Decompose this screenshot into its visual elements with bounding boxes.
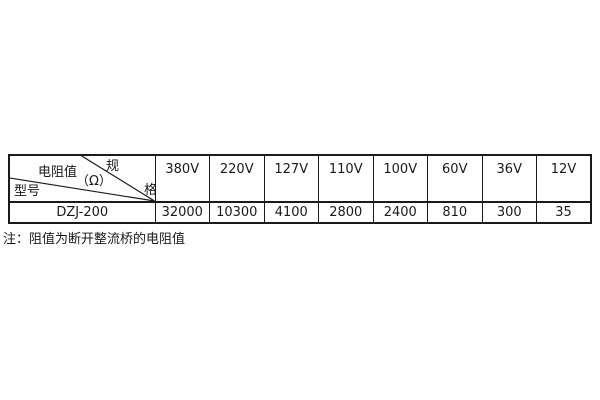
resistance-value-cell: 810	[428, 202, 483, 223]
resistance-spec-table: 规 格 电阻值 （Ω） 型号 380V 220V 127V 110V 100V …	[8, 154, 592, 224]
resistance-value-cell: 10300	[210, 202, 265, 223]
voltage-header-cell: 100V	[373, 155, 428, 202]
header-row: 规 格 电阻值 （Ω） 型号 380V 220V 127V 110V 100V …	[9, 155, 591, 202]
corner-label-spec-top: 规	[106, 160, 119, 173]
resistance-value-cell: 300	[482, 202, 537, 223]
corner-label-ohm-unit: （Ω）	[76, 175, 112, 188]
model-cell: DZJ-200	[9, 202, 155, 223]
voltage-header-cell: 60V	[428, 155, 483, 202]
resistance-value-cell: 4100	[264, 202, 319, 223]
resistance-value-cell: 2800	[319, 202, 374, 223]
corner-label-resistance: 电阻值	[38, 166, 77, 179]
resistance-value-cell: 32000	[155, 202, 210, 223]
voltage-header-cell: 380V	[155, 155, 210, 202]
data-row: DZJ-200 32000 10300 4100 2800 2400 810 3…	[9, 202, 591, 223]
page: 规 格 电阻值 （Ω） 型号 380V 220V 127V 110V 100V …	[0, 0, 600, 400]
resistance-value-cell: 35	[537, 202, 592, 223]
corner-label-spec-bottom: 格	[144, 184, 155, 197]
voltage-header-cell: 12V	[537, 155, 592, 202]
voltage-header-cell: 36V	[482, 155, 537, 202]
voltage-header-cell: 220V	[210, 155, 265, 202]
voltage-header-cell: 110V	[319, 155, 374, 202]
corner-label-model: 型号	[14, 185, 40, 198]
footnote: 注：阻值为断开整流桥的电阻值	[3, 228, 185, 247]
resistance-value-cell: 2400	[373, 202, 428, 223]
diagonal-header-cell: 规 格 电阻值 （Ω） 型号	[9, 155, 155, 202]
voltage-header-cell: 127V	[264, 155, 319, 202]
